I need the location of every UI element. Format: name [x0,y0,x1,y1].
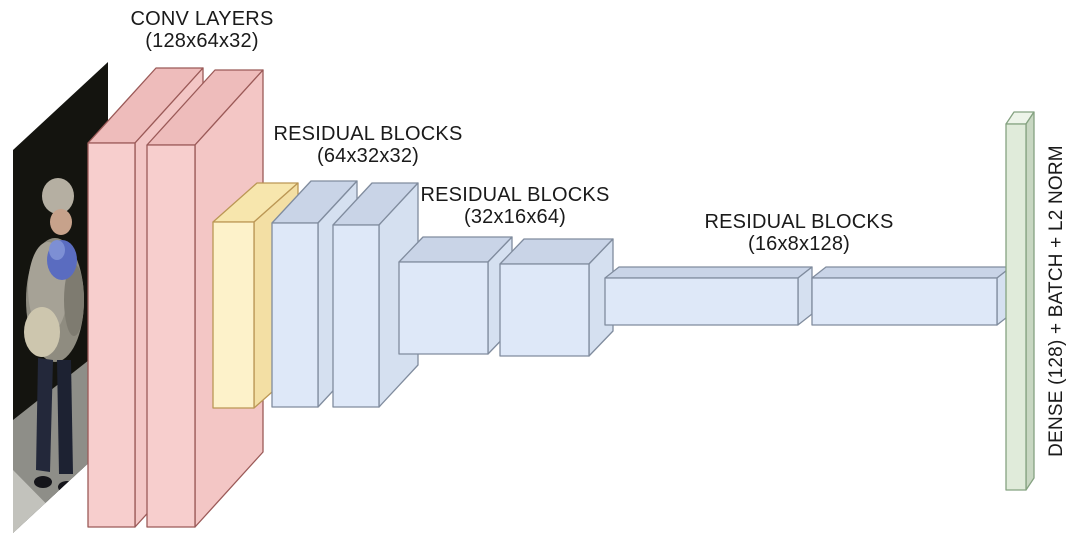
label-conv-layers-name: CONV LAYERS [82,8,322,30]
residual-cube-1-front [399,262,488,354]
label-residual-blocks-2-dims: (32x16x64) [395,206,635,228]
residual-bar-2-top [812,267,1011,278]
label-residual-blocks-3: RESIDUAL BLOCKS (16x8x128) [679,211,919,255]
residual-slab-1-front [272,223,318,407]
label-conv-layers-dims: (128x64x32) [82,30,322,52]
label-residual-blocks-3-name: RESIDUAL BLOCKS [679,211,919,233]
conv-block-1-front [88,143,135,527]
label-conv-layers: CONV LAYERS (128x64x32) [82,8,322,52]
pool-block-front [213,222,254,408]
label-dense-layer-name: DENSE (128) + BATCH + L2 NORM [1045,111,1069,491]
diagram-canvas [0,0,1080,544]
dense-bar-side [1026,112,1034,490]
conv-block-2-front [147,145,195,527]
label-dense-layer: DENSE (128) + BATCH + L2 NORM [1045,111,1069,491]
person-pants-right [57,360,73,474]
label-residual-blocks-1: RESIDUAL BLOCKS (64x32x32) [248,123,488,167]
architecture-diagram: CONV LAYERS (128x64x32) RESIDUAL BLOCKS … [0,0,1080,544]
person-bag [24,307,60,357]
residual-bar-1 [605,267,812,325]
person-face [50,209,72,235]
person-hair [42,178,74,214]
residual-slab-2-front [333,225,379,407]
dense-bar [1006,112,1034,490]
label-residual-blocks-1-name: RESIDUAL BLOCKS [248,123,488,145]
residual-cube-2 [500,239,613,356]
person-scarf-highlight [49,240,65,260]
person-shoe-left [34,476,52,488]
residual-bar-1-top [605,267,812,278]
residual-bar-1-front [605,278,798,325]
dense-bar-front [1006,124,1026,490]
residual-bar-2 [812,267,1011,325]
label-residual-blocks-2-name: RESIDUAL BLOCKS [395,184,635,206]
residual-cube-2-front [500,264,589,356]
residual-cube-1 [399,237,512,354]
person-shoe-right [58,481,76,493]
residual-bar-1-side [798,267,812,325]
residual-bar-2-front [812,278,997,325]
person-pants-left [36,358,53,472]
label-residual-blocks-1-dims: (64x32x32) [248,145,488,167]
label-residual-blocks-3-dims: (16x8x128) [679,233,919,255]
label-residual-blocks-2: RESIDUAL BLOCKS (32x16x64) [395,184,635,228]
